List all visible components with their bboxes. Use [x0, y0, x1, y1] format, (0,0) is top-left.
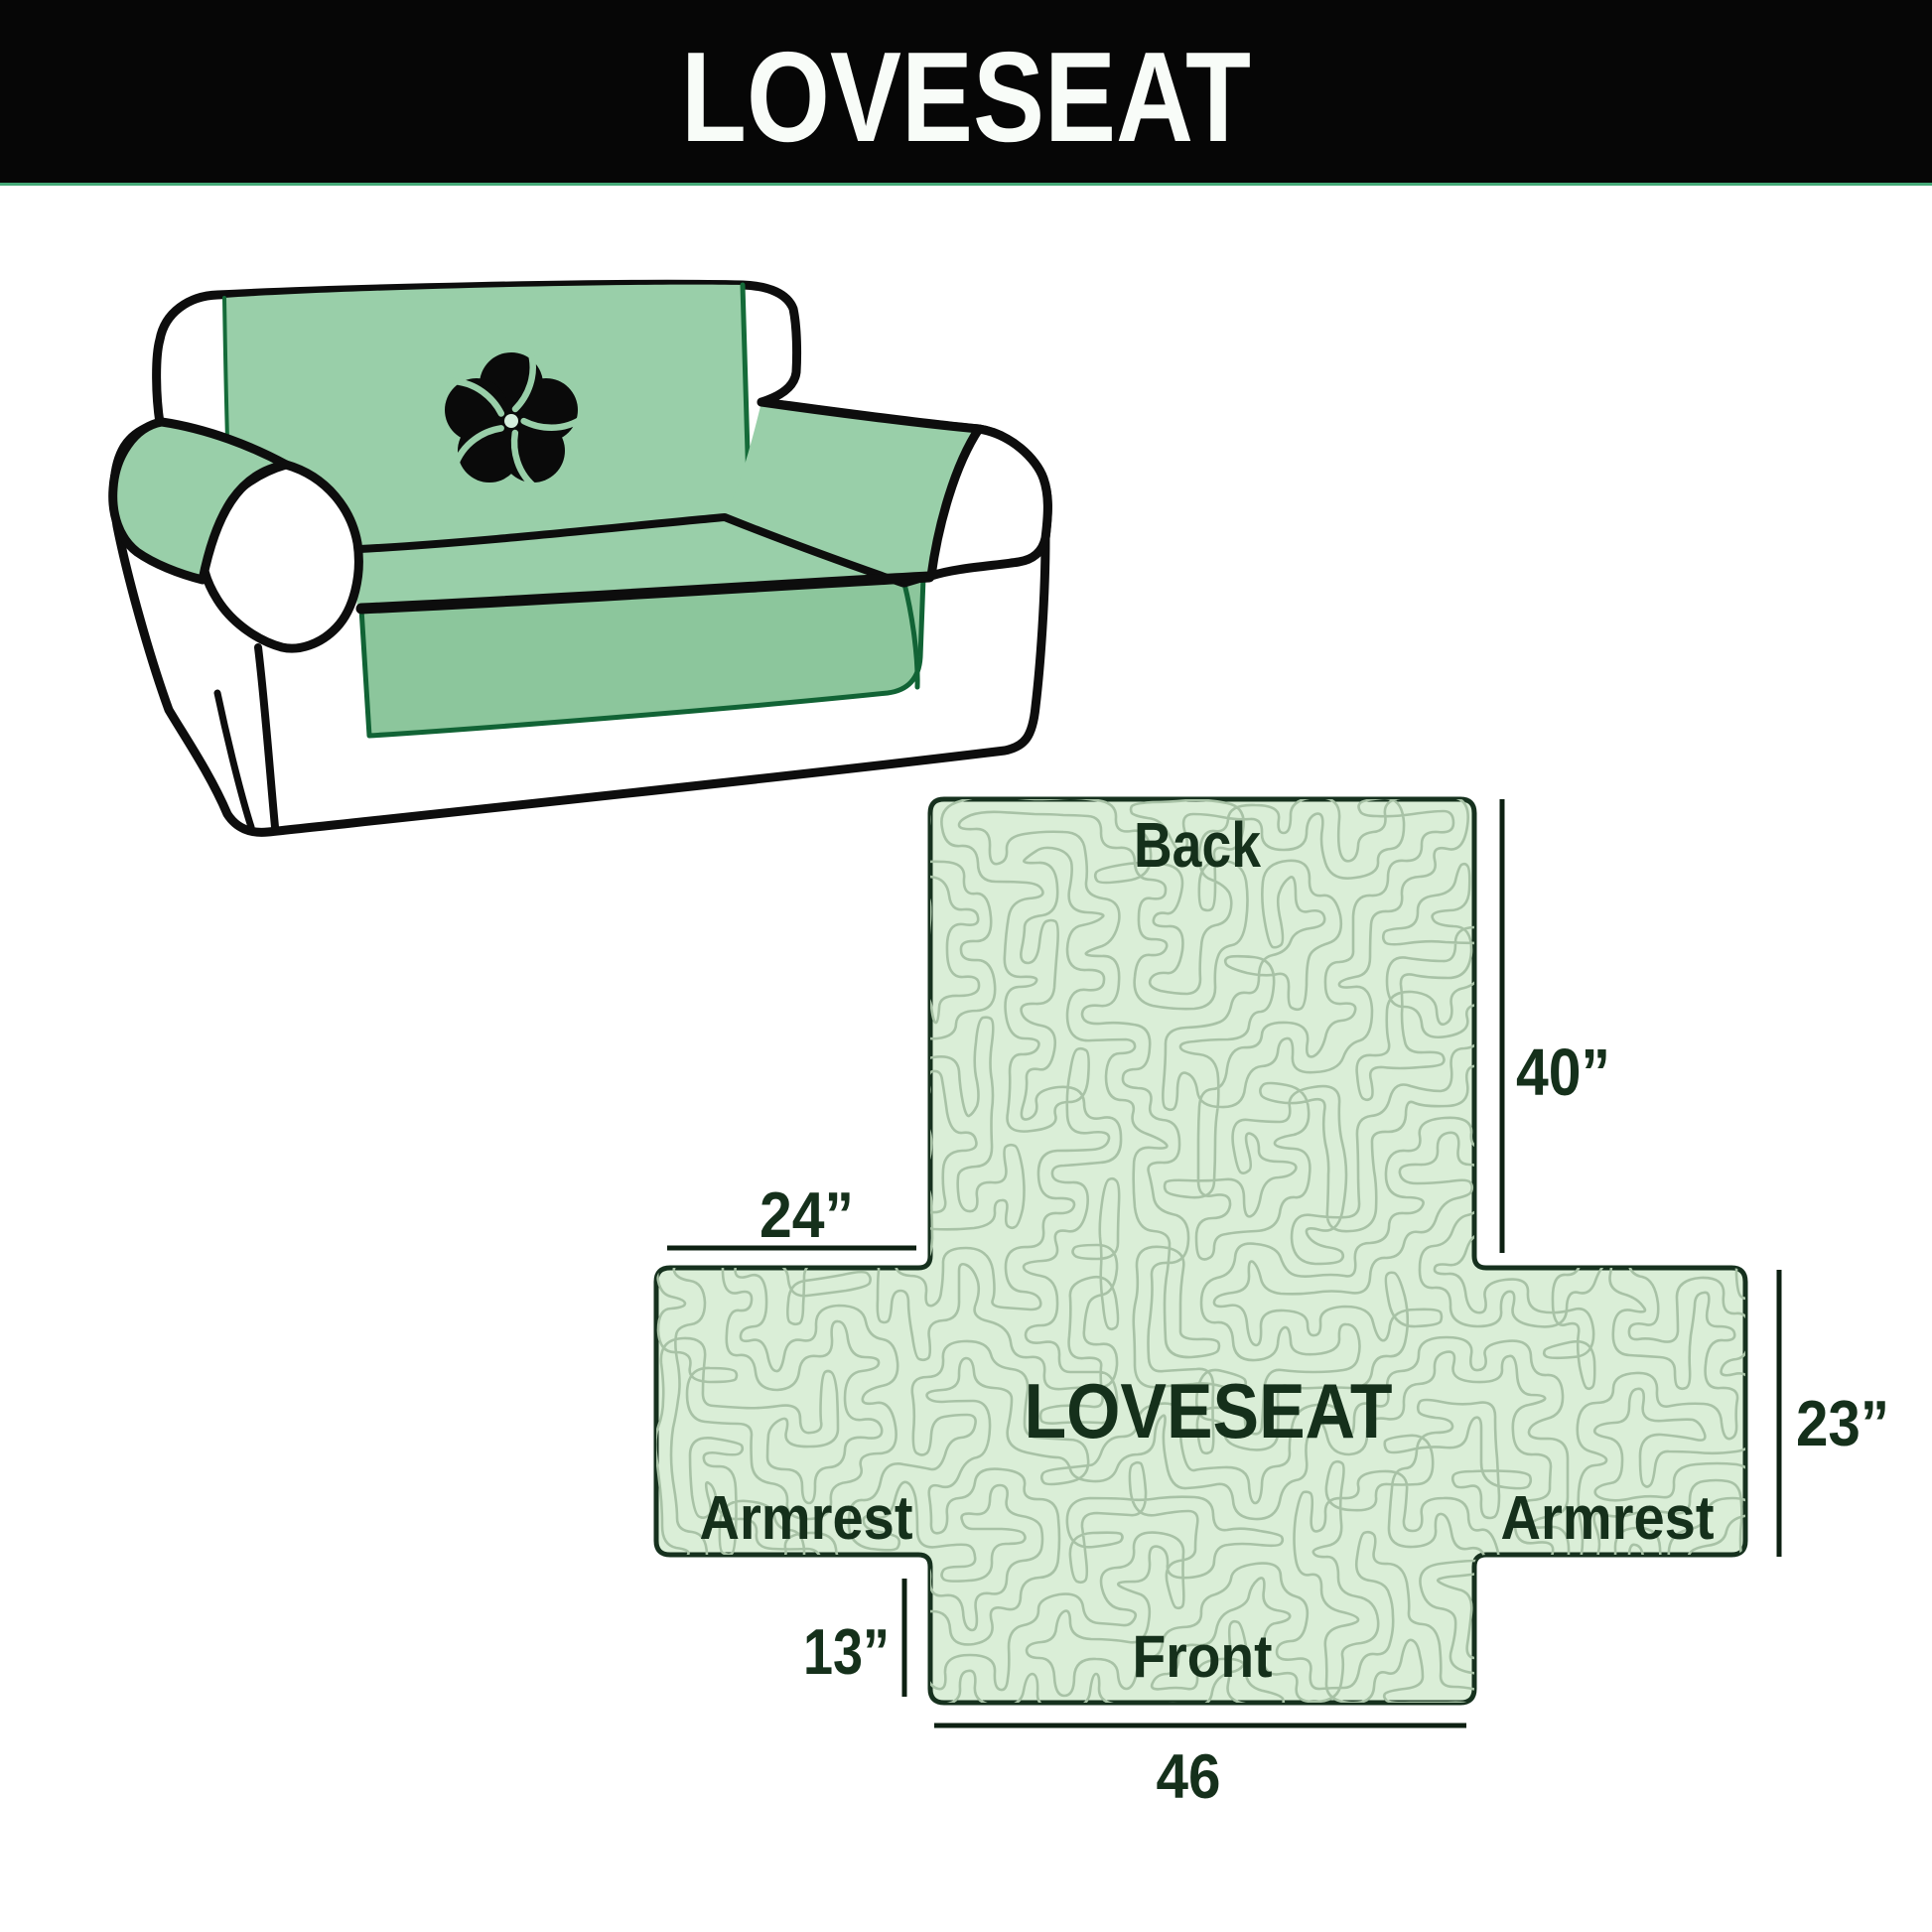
svg-text:Armrest: Armrest: [700, 1484, 913, 1553]
svg-text:24”: 24”: [759, 1178, 854, 1251]
svg-text:13”: 13”: [803, 1615, 890, 1688]
svg-text:40”: 40”: [1516, 1035, 1610, 1110]
svg-text:23”: 23”: [1796, 1387, 1889, 1459]
svg-text:46: 46: [1157, 1742, 1221, 1812]
svg-text:Back: Back: [1134, 809, 1261, 881]
svg-text:LOVESEAT: LOVESEAT: [1025, 1367, 1393, 1454]
svg-text:LOVESEAT: LOVESEAT: [681, 26, 1251, 169]
svg-text:Front: Front: [1133, 1623, 1273, 1690]
svg-text:Armrest: Armrest: [1501, 1484, 1715, 1553]
